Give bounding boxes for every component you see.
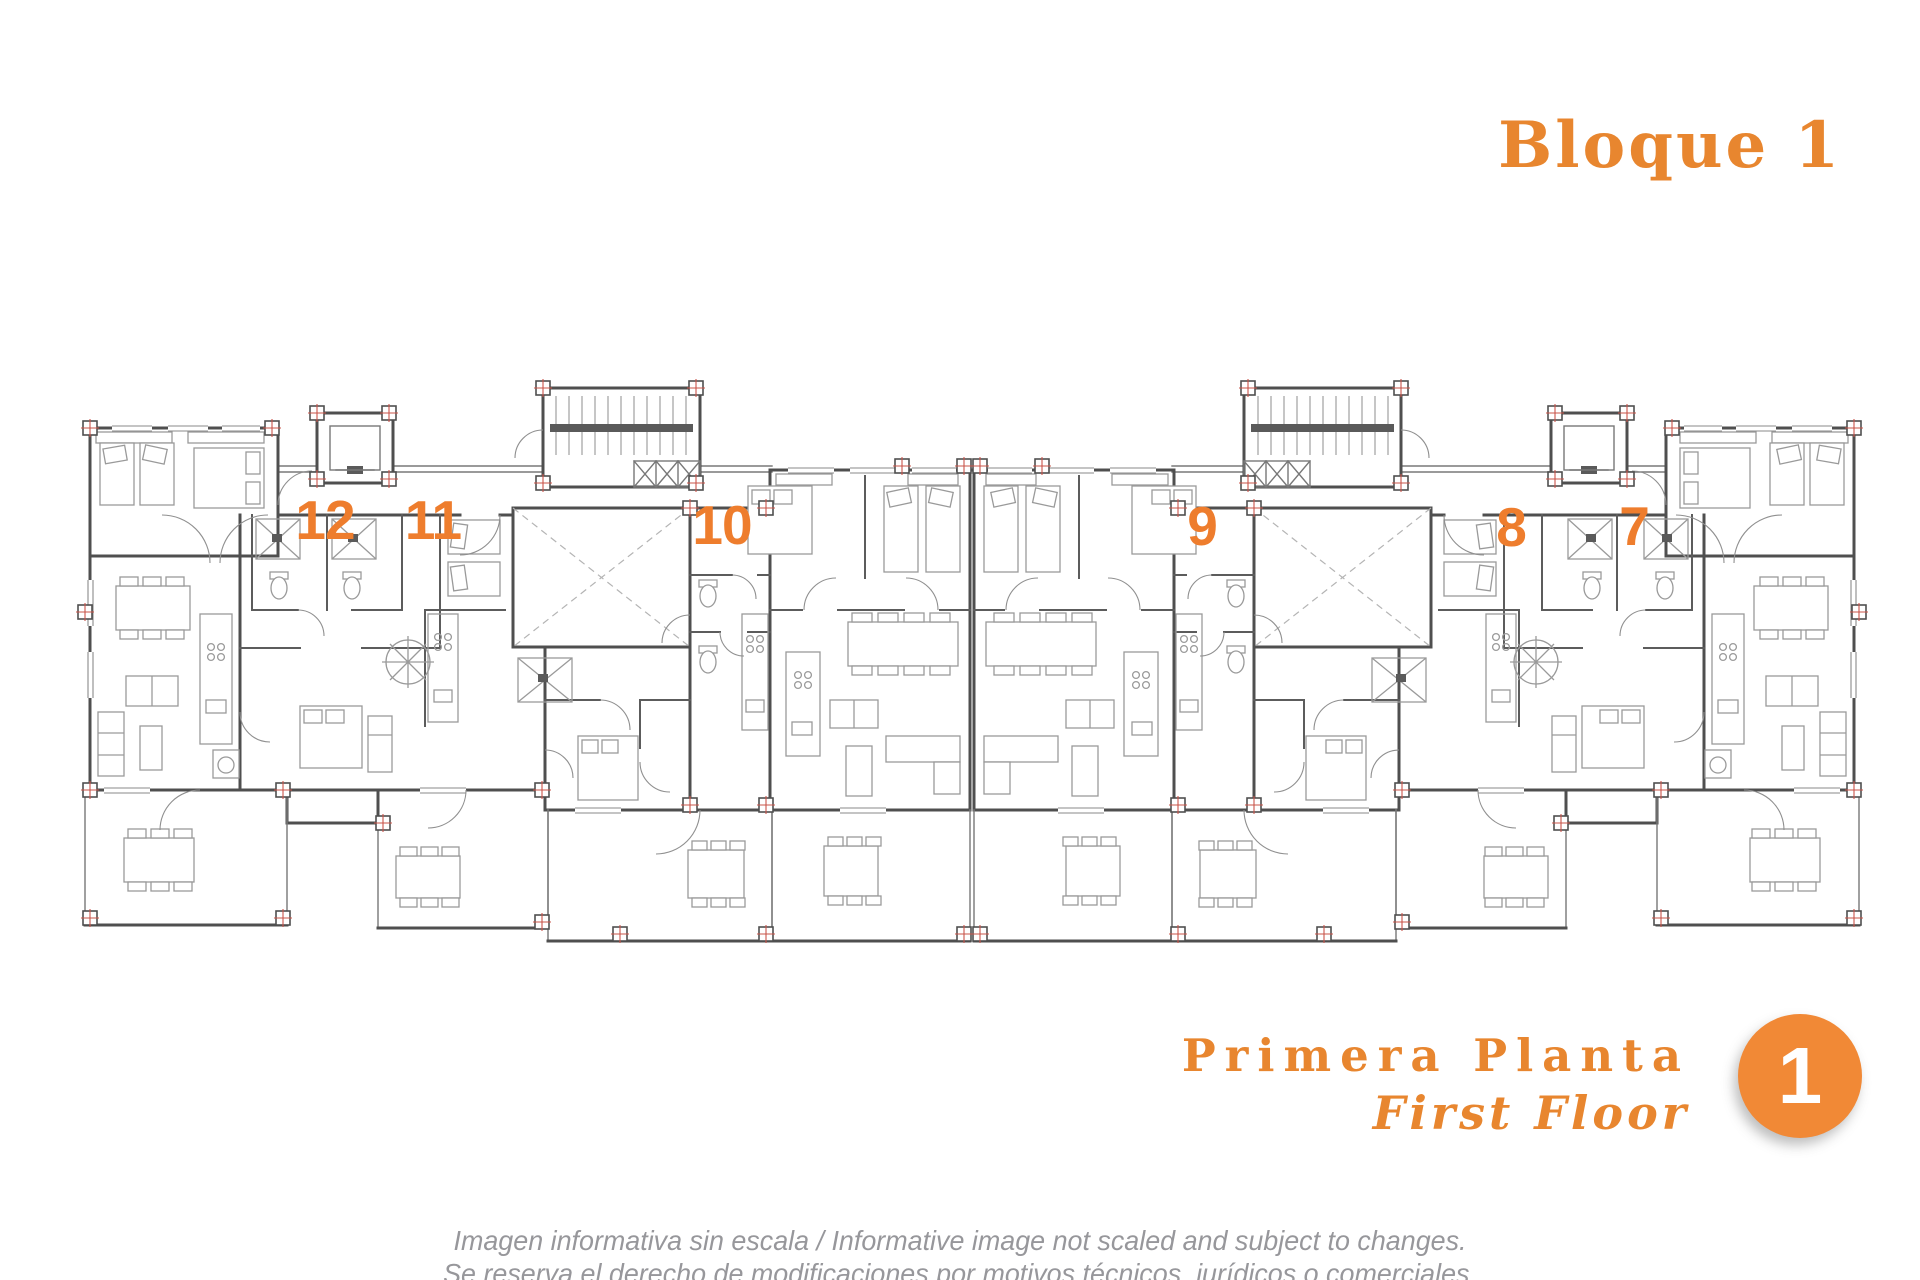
unit-number-11: 11 xyxy=(405,488,461,552)
floor-label-en: First Floor xyxy=(1182,1084,1690,1142)
disclaimer: Imagen informativa sin escala / Informat… xyxy=(38,1224,1881,1280)
unit-number-7: 7 xyxy=(1619,494,1649,558)
floor-number-badge: 1 xyxy=(1738,1014,1862,1138)
unit-number-12: 12 xyxy=(295,488,354,552)
floor-label-es: Primera Planta xyxy=(1182,1028,1690,1084)
unit-number-8: 8 xyxy=(1496,495,1526,559)
page: 121110987 Bloque 1 Primera Planta First … xyxy=(0,0,1920,1280)
block-title: Bloque 1 xyxy=(1498,108,1842,183)
unit-number-9: 9 xyxy=(1187,494,1217,558)
disclaimer-line-1: Imagen informativa sin escala / Informat… xyxy=(38,1224,1881,1257)
unit-number-10: 10 xyxy=(692,493,751,557)
floor-label: Primera Planta First Floor xyxy=(1182,1028,1690,1142)
disclaimer-line-2: Se reserva el derecho de modificaciones … xyxy=(38,1257,1881,1280)
